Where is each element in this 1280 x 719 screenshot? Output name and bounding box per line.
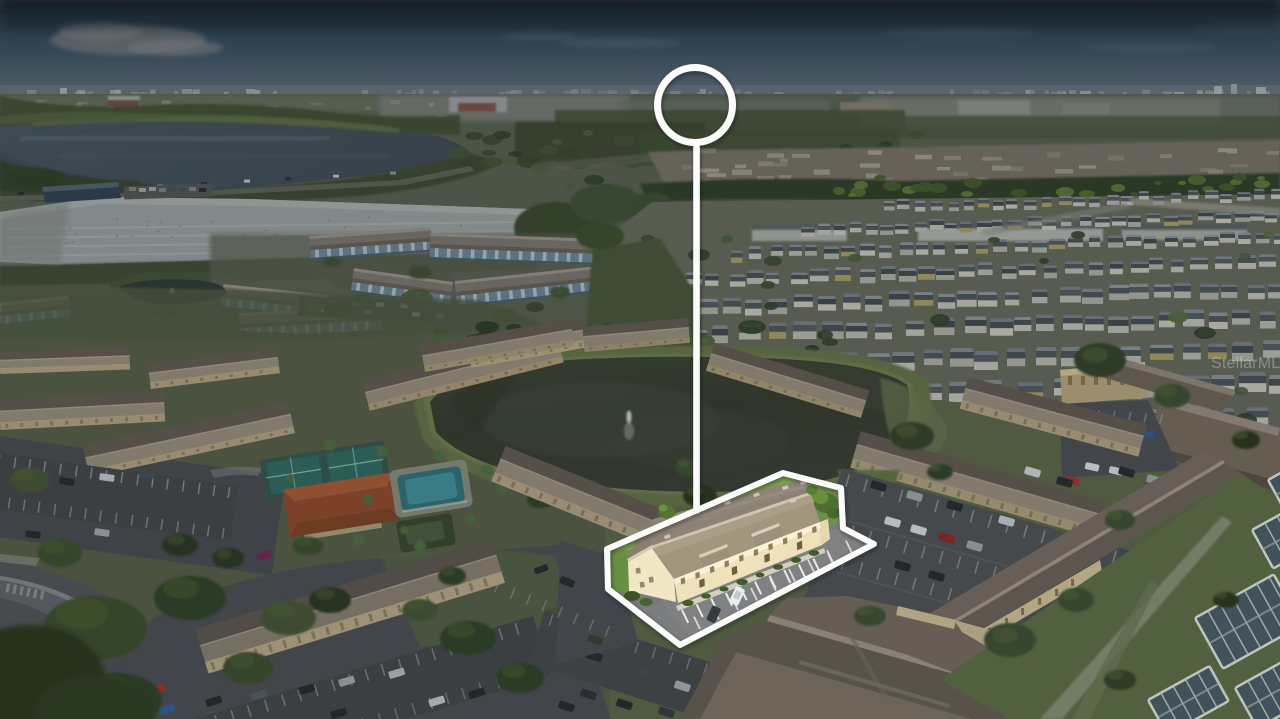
svg-text:StellarMLS: StellarMLS [1211,355,1280,372]
